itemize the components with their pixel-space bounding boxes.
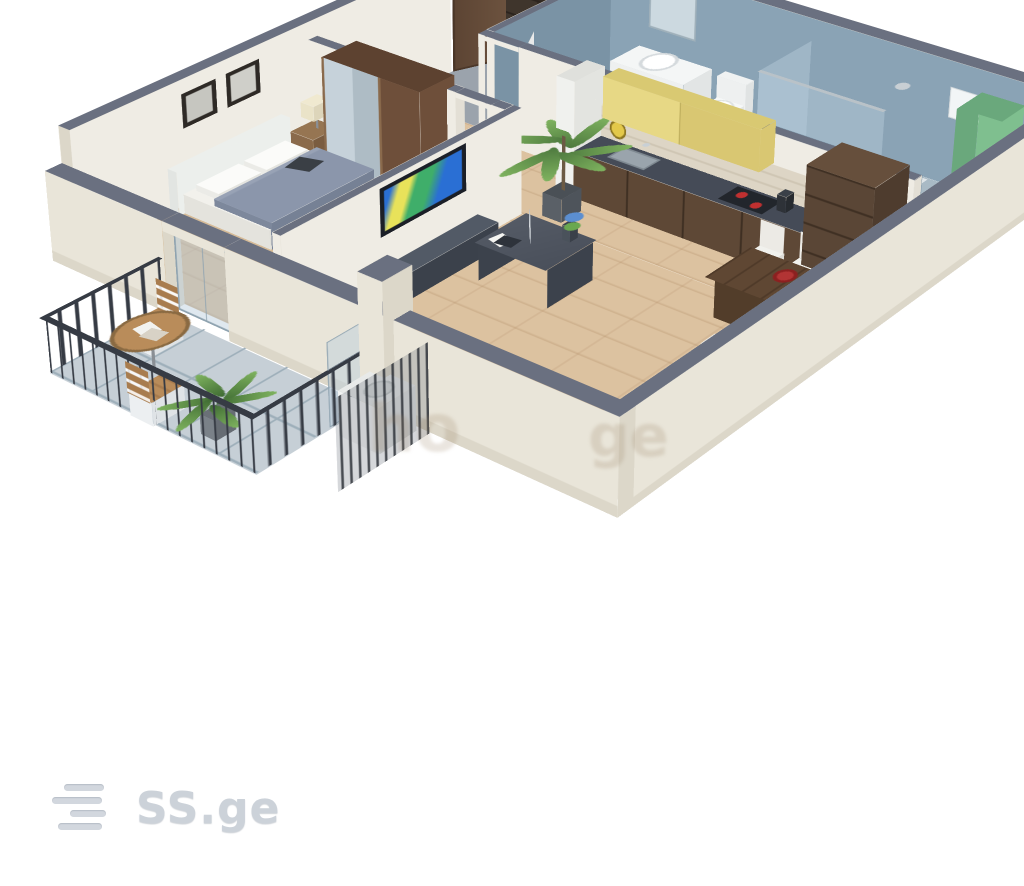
logo-bar [58, 823, 102, 830]
logo-text: SS.ge [136, 783, 280, 834]
stacked-lines-icon [52, 780, 110, 836]
isometric-stage [0, 0, 1024, 886]
logo-bar [64, 784, 104, 791]
ss-ge-logo: SS.ge [52, 780, 280, 836]
palm-trunk [562, 135, 566, 193]
logo-bar [52, 797, 102, 804]
floorplan-render: ho ge SS.ge [0, 0, 1024, 886]
logo-bar [70, 810, 106, 817]
